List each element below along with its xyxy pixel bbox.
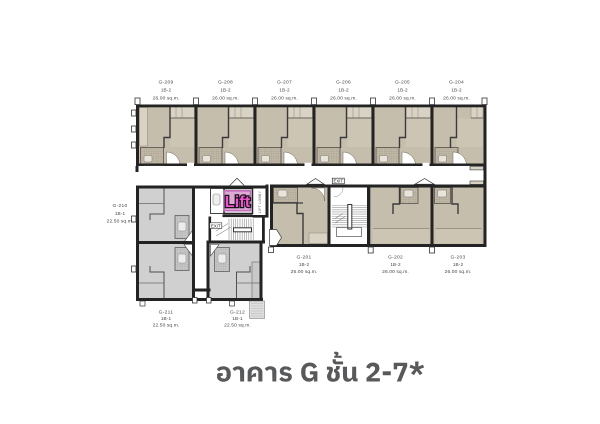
- svg-text:G-201: G-201: [296, 254, 311, 260]
- svg-text:1B-2: 1B-2: [451, 87, 462, 92]
- svg-text:G-203: G-203: [450, 254, 465, 260]
- svg-text:1B-1: 1B-1: [232, 316, 243, 321]
- svg-text:1B-2: 1B-2: [220, 87, 231, 92]
- svg-text:EXIT: EXIT: [333, 179, 343, 184]
- svg-text:1B-1: 1B-1: [115, 211, 126, 216]
- svg-text:26.00 sq.m.: 26.00 sq.m.: [389, 95, 416, 101]
- svg-text:26.00 sq.m.: 26.00 sq.m.: [330, 95, 357, 101]
- svg-text:26.00 sq.m.: 26.00 sq.m.: [445, 269, 472, 275]
- svg-text:Lift: Lift: [225, 194, 251, 211]
- svg-text:1B-2: 1B-2: [390, 262, 401, 267]
- svg-text:G-211: G-211: [159, 309, 174, 315]
- svg-text:26.00 sq.m.: 26.00 sq.m.: [271, 95, 298, 101]
- svg-text:G-212: G-212: [230, 309, 245, 315]
- svg-text:26.00 sq.m.: 26.00 sq.m.: [443, 95, 470, 101]
- svg-text:22.50 sq.m.: 22.50 sq.m.: [224, 323, 251, 329]
- svg-text:1B-2: 1B-2: [161, 87, 172, 92]
- svg-text:LIFT LOBBY: LIFT LOBBY: [258, 190, 262, 213]
- svg-text:G-208: G-208: [218, 80, 233, 86]
- svg-text:26.00 sq.m.: 26.00 sq.m.: [212, 95, 239, 101]
- svg-text:1B-1: 1B-1: [161, 316, 172, 321]
- svg-text:22.50 sq.m.: 22.50 sq.m.: [107, 218, 134, 224]
- svg-text:G-209: G-209: [158, 80, 173, 86]
- svg-text:22.50 sq.m.: 22.50 sq.m.: [153, 323, 180, 329]
- svg-text:1B-2: 1B-2: [453, 262, 464, 267]
- svg-text:G-202: G-202: [388, 254, 403, 260]
- svg-text:26.00 sq.m.: 26.00 sq.m.: [291, 269, 318, 275]
- svg-text:G-205: G-205: [395, 80, 410, 86]
- svg-text:1B-2: 1B-2: [279, 87, 290, 92]
- svg-text:26.00 sq.m.: 26.00 sq.m.: [382, 269, 409, 275]
- svg-text:1B-2: 1B-2: [338, 87, 349, 92]
- svg-text:26.00 sq.m.: 26.00 sq.m.: [153, 95, 180, 101]
- svg-text:1B-2: 1B-2: [299, 262, 310, 267]
- svg-text:G-210: G-210: [112, 203, 127, 209]
- svg-text:G-204: G-204: [449, 80, 464, 86]
- svg-text:G-206: G-206: [336, 80, 351, 86]
- svg-text:EXIT: EXIT: [211, 223, 221, 228]
- svg-text:1B-2: 1B-2: [397, 87, 408, 92]
- svg-text:G-207: G-207: [277, 80, 292, 86]
